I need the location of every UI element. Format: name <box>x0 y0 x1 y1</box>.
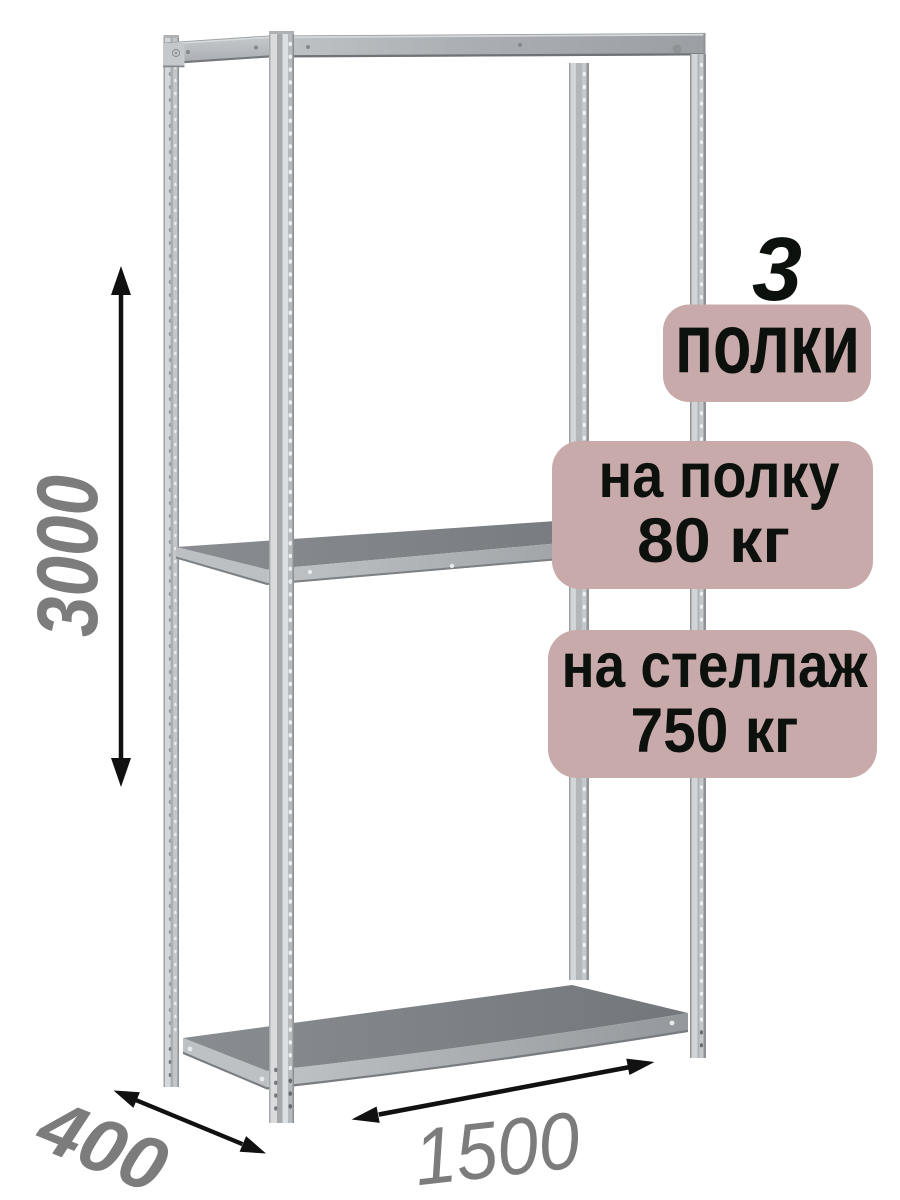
svg-text:80 кг: 80 кг <box>637 506 790 576</box>
svg-text:полки: полки <box>675 297 860 391</box>
svg-text:на стеллаж: на стеллаж <box>562 631 869 701</box>
svg-text:1500: 1500 <box>409 1095 584 1200</box>
svg-text:750 кг: 750 кг <box>631 696 799 766</box>
svg-text:на полку: на полку <box>599 441 840 511</box>
svg-text:3000: 3000 <box>20 475 116 637</box>
